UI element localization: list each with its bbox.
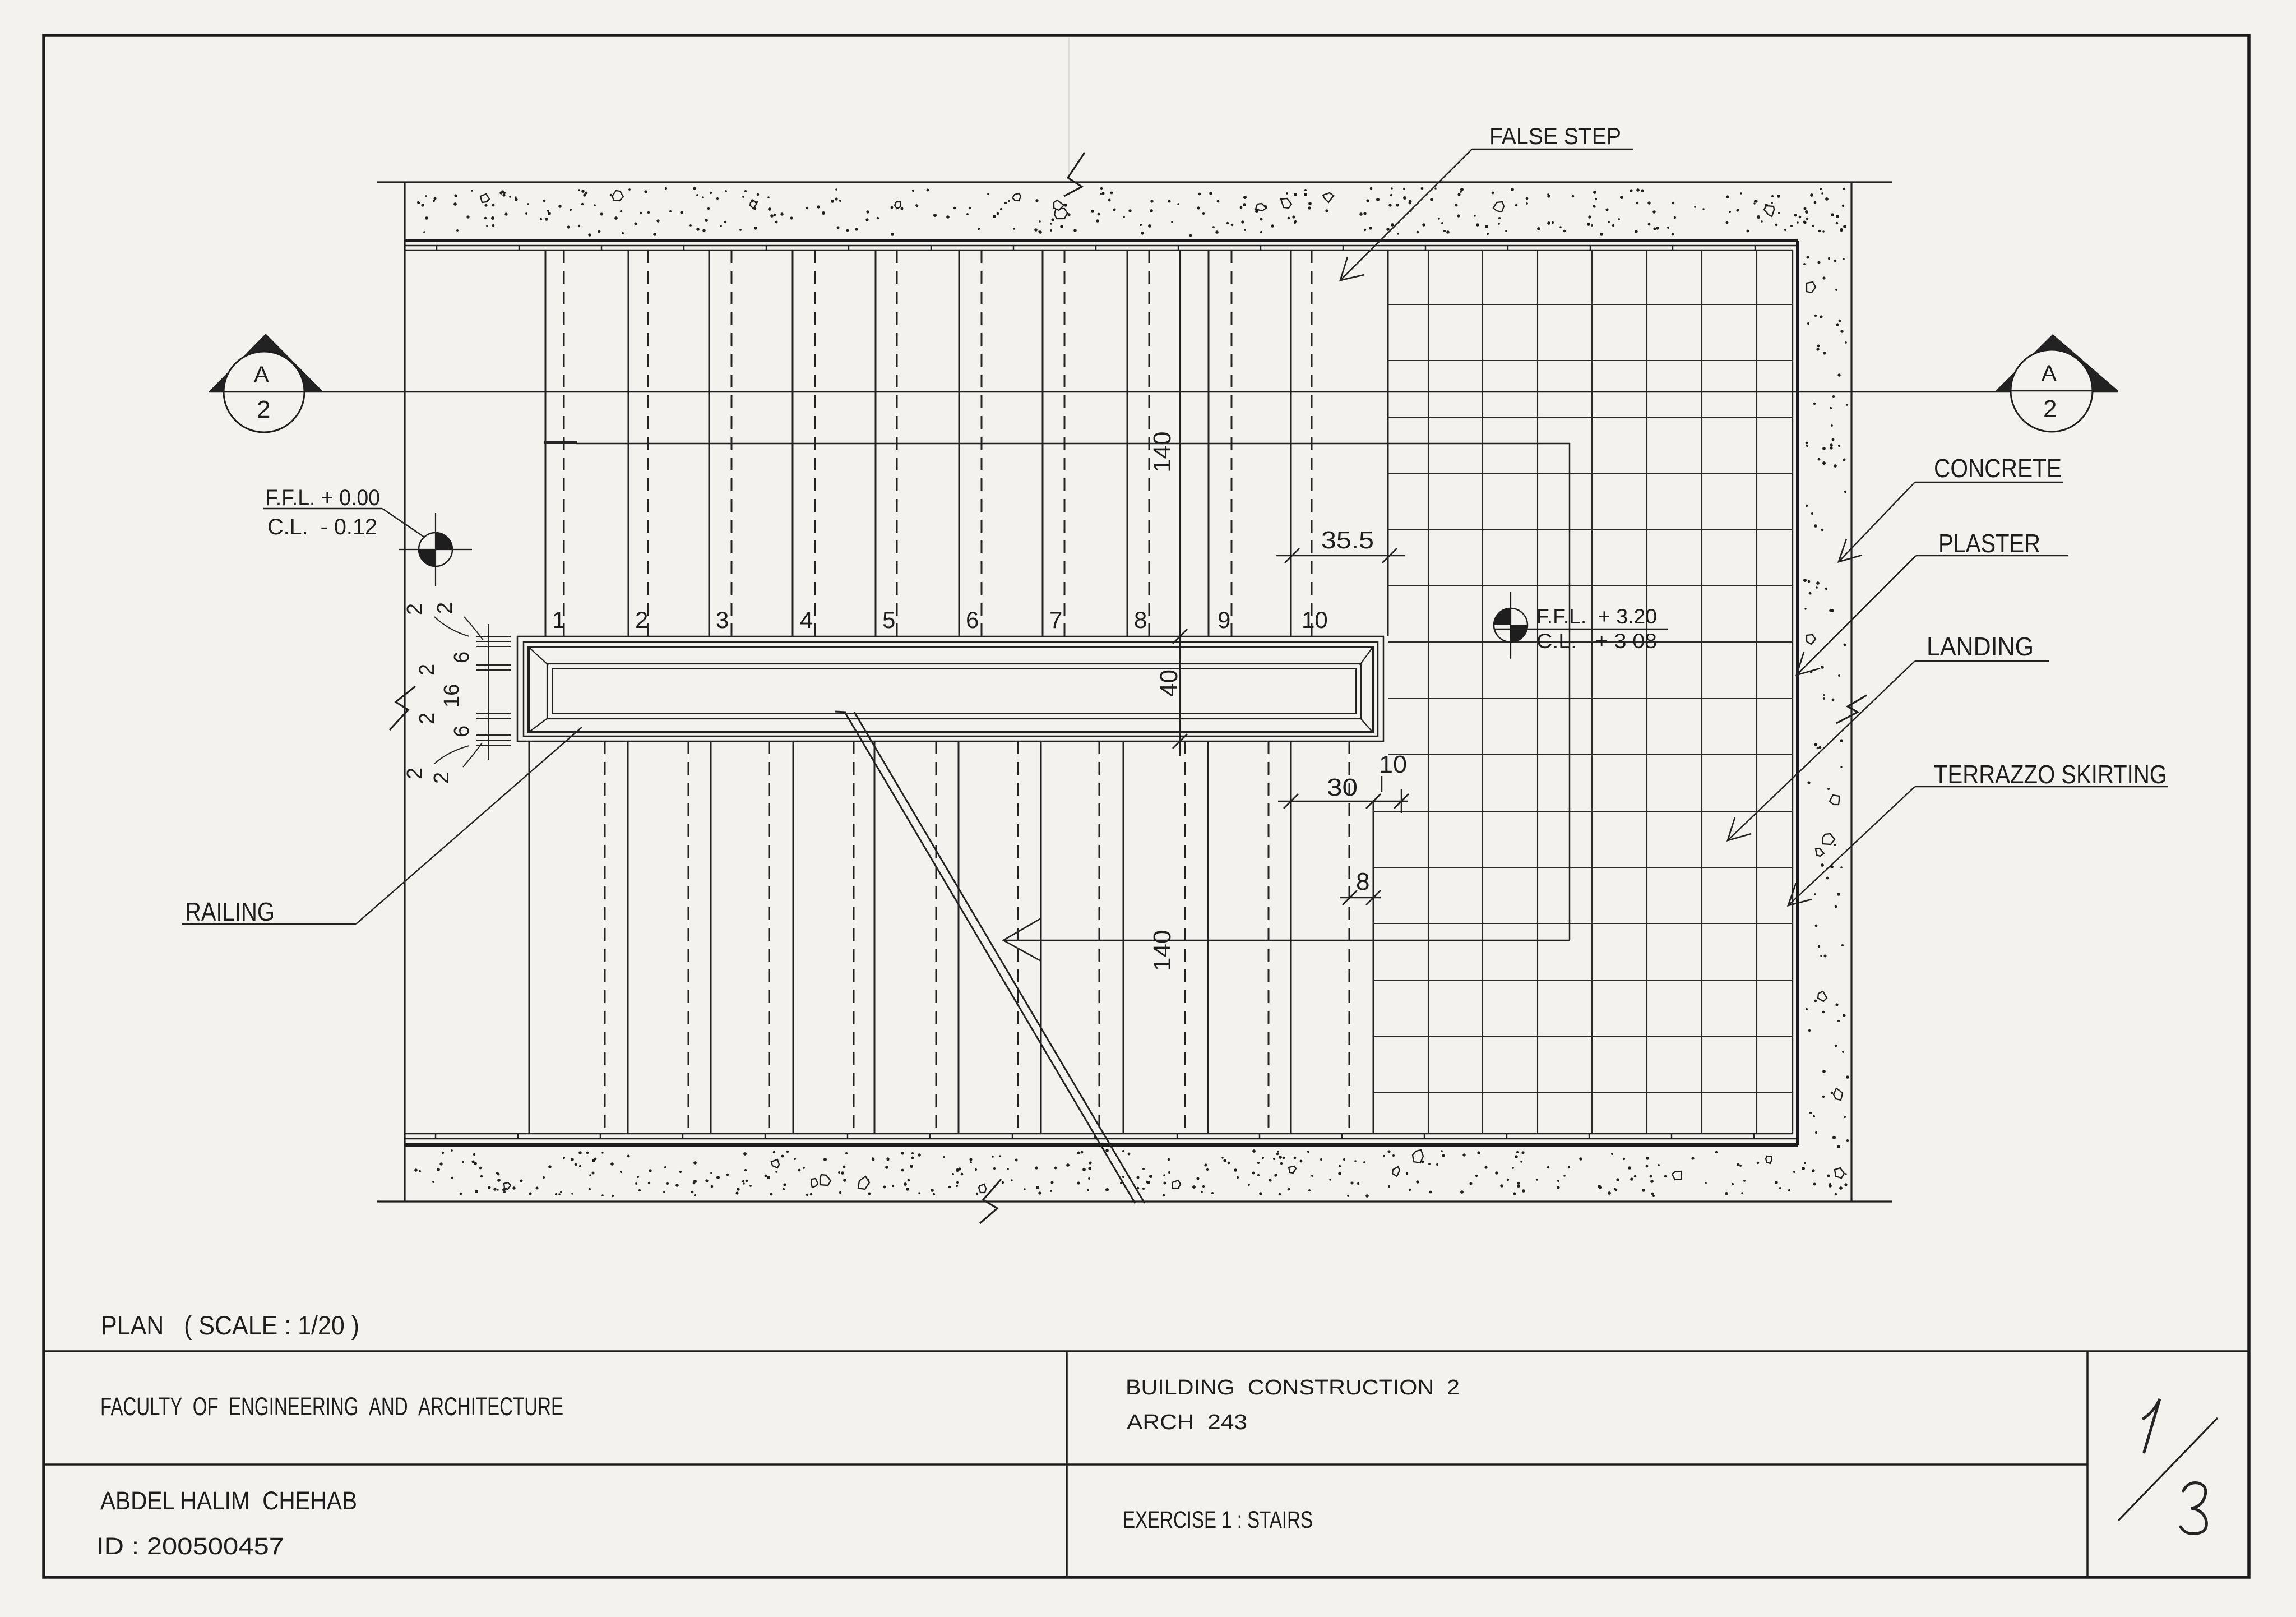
svg-text:C.L. - 0.12: C.L. - 0.12 — [267, 515, 377, 539]
svg-text:2: 2 — [403, 768, 427, 779]
svg-text:6: 6 — [450, 652, 474, 663]
svg-text:2: 2 — [2043, 395, 2057, 423]
svg-text:PLAN ( SCALE : 1/20 ): PLAN ( SCALE : 1/20 ) — [101, 1310, 359, 1340]
svg-text:10: 10 — [1302, 607, 1328, 633]
svg-text:FALSE STEP: FALSE STEP — [1489, 123, 1621, 149]
svg-text:2: 2 — [430, 772, 453, 784]
svg-text:6: 6 — [450, 726, 474, 737]
svg-text:BUILDING CONSTRUCTION 2: BUILDING CONSTRUCTION 2 — [1126, 1376, 1460, 1399]
svg-text:3: 3 — [716, 607, 729, 633]
svg-text:A: A — [254, 362, 269, 387]
svg-text:5: 5 — [882, 607, 895, 633]
svg-text:35.5: 35.5 — [1321, 526, 1374, 554]
svg-text:RAILING: RAILING — [185, 897, 275, 926]
svg-text:8: 8 — [1134, 607, 1147, 633]
svg-text:2: 2 — [415, 664, 439, 676]
svg-text:PLASTER: PLASTER — [1938, 529, 2040, 558]
svg-text:FACULTY OF ENGINEERING AND: FACULTY OF ENGINEERING AND ARCHITECTURE — [100, 1392, 563, 1421]
svg-text:2: 2 — [415, 713, 439, 724]
svg-text:ABDEL HALIM CHEHAB: ABDEL HALIM CHEHAB — [100, 1486, 357, 1515]
svg-text:1: 1 — [552, 607, 565, 633]
svg-text:6: 6 — [966, 607, 979, 633]
svg-text:16: 16 — [440, 684, 464, 708]
svg-text:ID : 200500457: ID : 200500457 — [96, 1533, 284, 1560]
svg-text:4: 4 — [800, 607, 813, 633]
svg-text:140: 140 — [1149, 432, 1176, 473]
svg-text:2: 2 — [433, 602, 457, 614]
svg-text:40: 40 — [1155, 669, 1183, 697]
svg-text:30: 30 — [1327, 774, 1358, 801]
svg-text:F.F.L. + 3.20: F.F.L. + 3.20 — [1536, 605, 1657, 628]
svg-text:140: 140 — [1149, 930, 1176, 971]
svg-text:2: 2 — [403, 603, 427, 615]
svg-text:EXERCISE 1 : STAIRS: EXERCISE 1 : STAIRS — [1123, 1507, 1313, 1533]
svg-text:8: 8 — [1356, 868, 1369, 895]
svg-text:C.L. + 3 08: C.L. + 3 08 — [1536, 630, 1657, 653]
svg-text:A: A — [2042, 361, 2057, 386]
svg-text:9: 9 — [1218, 607, 1230, 633]
svg-text:2: 2 — [257, 396, 270, 423]
svg-text:ARCH 243: ARCH 243 — [1127, 1411, 1247, 1434]
svg-text:F.F.L. + 0.00: F.F.L. + 0.00 — [265, 486, 380, 510]
svg-text:10: 10 — [1379, 751, 1407, 778]
svg-text:LANDING: LANDING — [1927, 632, 2034, 661]
svg-text:7: 7 — [1049, 607, 1062, 633]
svg-text:CONCRETE: CONCRETE — [1934, 454, 2062, 483]
svg-text:2: 2 — [635, 607, 648, 633]
svg-text:TERRAZZO SKIRTING: TERRAZZO SKIRTING — [1934, 760, 2167, 789]
